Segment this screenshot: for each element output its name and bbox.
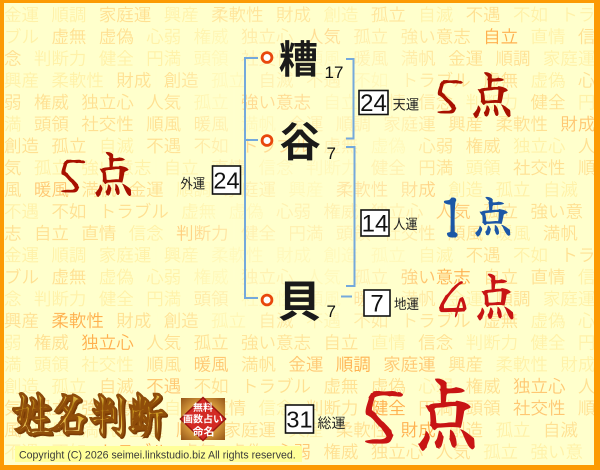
svg-text:14: 14 <box>362 211 389 238</box>
svg-text:31: 31 <box>286 407 312 433</box>
svg-text:24: 24 <box>360 90 387 117</box>
svg-text:24: 24 <box>213 168 239 194</box>
svg-text:17: 17 <box>325 63 344 82</box>
svg-text:Copyright (C) 2026 seimei.link: Copyright (C) 2026 seimei.linkstudio.biz… <box>19 450 296 462</box>
svg-text:7: 7 <box>370 291 383 318</box>
svg-text:7: 7 <box>327 144 336 163</box>
svg-text:7: 7 <box>327 302 336 321</box>
